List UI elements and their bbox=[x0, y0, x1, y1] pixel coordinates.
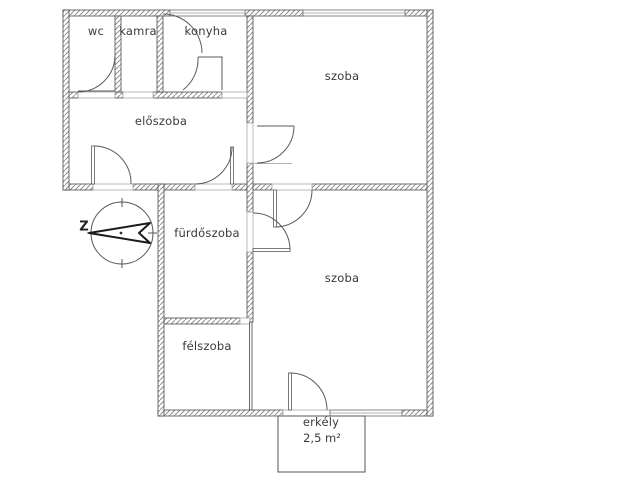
door-szoba-divider bbox=[274, 190, 313, 227]
compass-needle bbox=[89, 223, 150, 243]
door-eloszoba-left bbox=[92, 146, 132, 184]
door-szoba-top bbox=[253, 126, 294, 164]
wall-openings bbox=[78, 92, 330, 416]
floor-plan-drawing bbox=[0, 0, 640, 480]
floor-plan-canvas: wc kamra konyha szoba előszoba fürdőszob… bbox=[0, 0, 640, 480]
room-label-erkely: erkély bbox=[303, 415, 339, 429]
area-label-erkely: 2,5 m² bbox=[303, 431, 341, 445]
room-label-szoba-bottom: szoba bbox=[325, 271, 359, 285]
room-label-furdoszoba: fürdőszoba bbox=[174, 226, 240, 240]
room-label-szoba-top: szoba bbox=[325, 69, 359, 83]
compass-label: Z bbox=[79, 220, 88, 235]
door-furdoszoba bbox=[253, 213, 290, 252]
room-label-kamra: kamra bbox=[119, 24, 156, 38]
door-eloszoba-right bbox=[195, 147, 234, 184]
windows bbox=[170, 10, 405, 416]
room-label-wc: wc bbox=[88, 24, 104, 38]
compass-rose bbox=[87, 198, 157, 268]
room-label-konyha: konyha bbox=[185, 24, 228, 38]
door-erkely bbox=[289, 373, 328, 410]
door-konyha bbox=[183, 57, 222, 90]
partition-wall bbox=[250, 322, 253, 410]
room-label-felszoba: félszoba bbox=[182, 339, 231, 353]
room-label-eloszoba: előszoba bbox=[135, 114, 187, 128]
door-wc bbox=[78, 55, 115, 92]
